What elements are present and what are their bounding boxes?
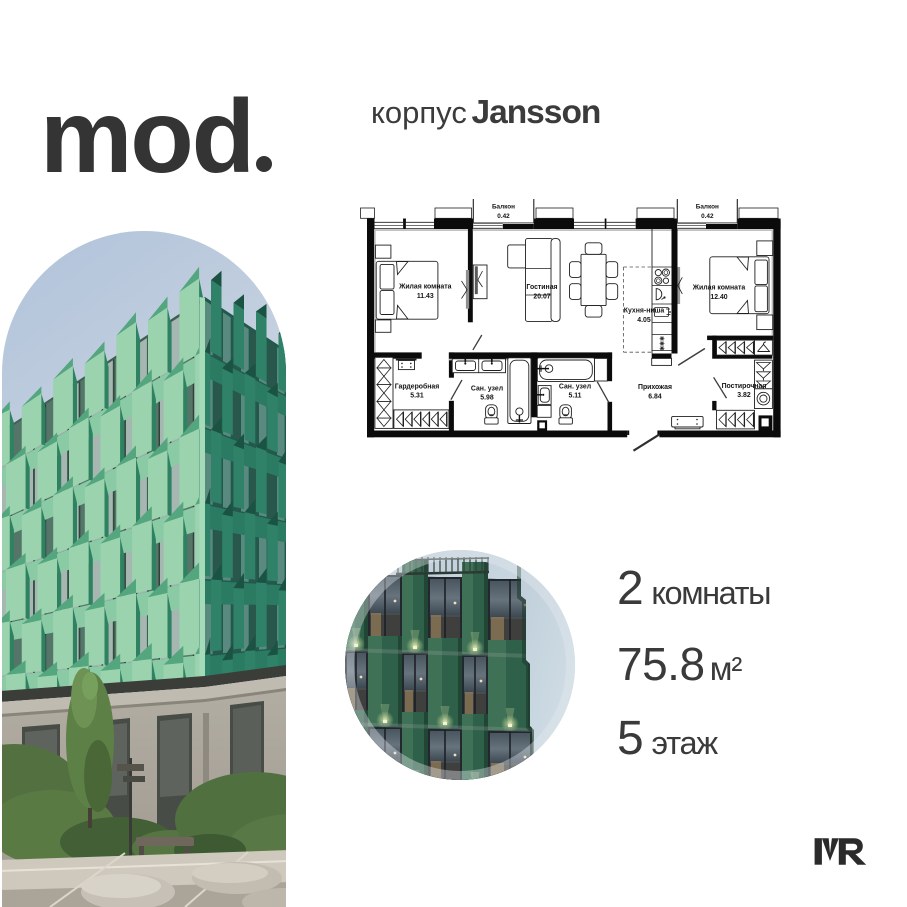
svg-text:0.42: 0.42 (701, 213, 714, 220)
svg-text:Гостиная: Гостиная (526, 284, 557, 291)
svg-text:Жилая комната: Жилая комната (398, 284, 452, 291)
svg-text:Кухня-ниша: Кухня-ниша (624, 308, 665, 315)
svg-text:3.82: 3.82 (737, 392, 751, 399)
svg-text:0.42: 0.42 (497, 213, 510, 220)
svg-text:Сан. узел: Сан. узел (559, 384, 591, 391)
svg-text:5.31: 5.31 (410, 393, 424, 400)
svg-text:Балкон: Балкон (696, 204, 719, 211)
svg-text:11.43: 11.43 (417, 293, 434, 300)
svg-text:12.40: 12.40 (710, 294, 727, 301)
svg-text:5.98: 5.98 (480, 395, 494, 402)
svg-text:Сан. узел: Сан. узел (471, 386, 503, 393)
svg-text:6.84: 6.84 (648, 394, 662, 401)
svg-text:Гардеробная: Гардеробная (395, 383, 440, 391)
svg-text:Балкон: Балкон (492, 204, 515, 211)
svg-text:5.11: 5.11 (568, 393, 581, 400)
svg-text:Постирочная: Постирочная (722, 383, 767, 390)
svg-text:Прихожая: Прихожая (638, 384, 672, 391)
svg-text:Жилая комната: Жилая комната (692, 285, 746, 292)
svg-text:4.05: 4.05 (637, 317, 651, 324)
svg-text:20.07: 20.07 (533, 294, 550, 301)
